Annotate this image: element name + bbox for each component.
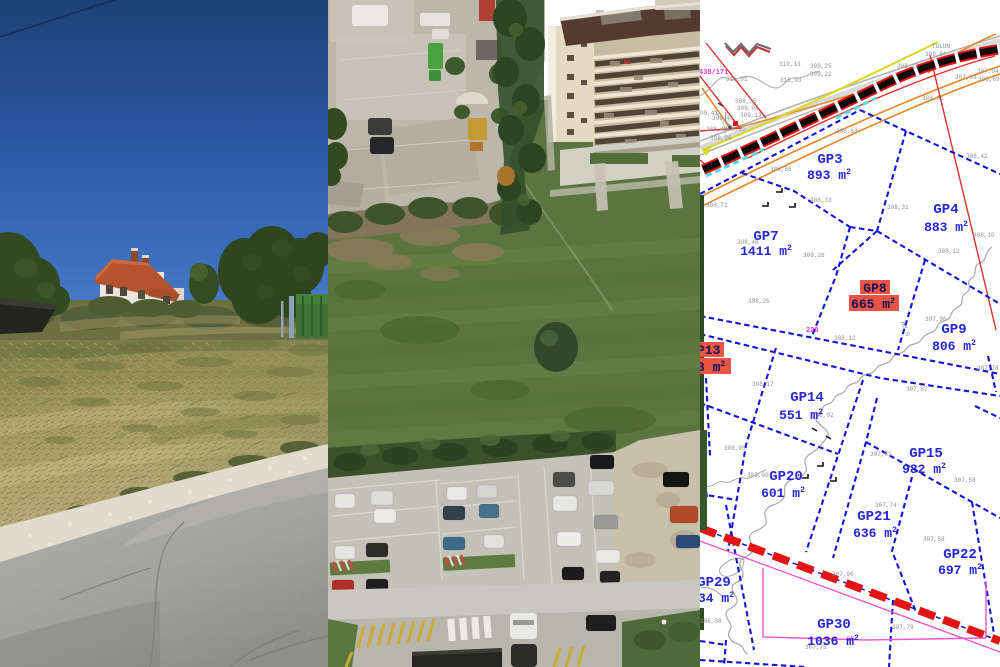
svg-text:308,61: 308,61 bbox=[922, 95, 944, 102]
svg-text:308,69: 308,69 bbox=[978, 76, 1000, 83]
svg-text:316,03: 316,03 bbox=[780, 77, 802, 84]
svg-text:GP29: GP29 bbox=[697, 575, 731, 591]
svg-text:307,58: 307,58 bbox=[923, 536, 945, 543]
svg-text:GP30: GP30 bbox=[817, 617, 851, 633]
svg-text:308,35: 308,35 bbox=[735, 98, 757, 105]
svg-text:1036 m2: 1036 m2 bbox=[807, 634, 859, 649]
svg-text:307,93: 307,93 bbox=[955, 74, 977, 81]
svg-text:GP20: GP20 bbox=[769, 469, 803, 485]
svg-text:308,72: 308,72 bbox=[706, 202, 728, 209]
svg-text:309,22: 309,22 bbox=[810, 71, 832, 78]
svg-text:308,17: 308,17 bbox=[752, 381, 774, 388]
svg-text:308,63: 308,63 bbox=[836, 128, 858, 135]
svg-text:GP21: GP21 bbox=[857, 509, 891, 525]
svg-text:308,25: 308,25 bbox=[748, 298, 770, 305]
svg-text:GP14: GP14 bbox=[790, 390, 824, 406]
svg-text:308,31: 308,31 bbox=[887, 204, 909, 211]
svg-text:665 m2: 665 m2 bbox=[851, 297, 895, 312]
svg-text:697 m2: 697 m2 bbox=[938, 563, 982, 578]
svg-text:307,87: 307,87 bbox=[906, 386, 928, 393]
svg-text:GP9: GP9 bbox=[941, 322, 966, 338]
svg-text:309,04: 309,04 bbox=[737, 105, 759, 112]
svg-text:GP7: GP7 bbox=[753, 229, 778, 245]
svg-text:893 m2: 893 m2 bbox=[807, 168, 851, 183]
svg-text:310,13: 310,13 bbox=[779, 61, 801, 68]
svg-text:308,26: 308,26 bbox=[710, 135, 732, 142]
svg-text:34 m2: 34 m2 bbox=[698, 591, 734, 606]
svg-text:308,21: 308,21 bbox=[724, 126, 746, 133]
svg-text:308,15: 308,15 bbox=[897, 63, 919, 70]
svg-text:551 m2: 551 m2 bbox=[779, 408, 823, 423]
svg-text:883 m2: 883 m2 bbox=[924, 220, 968, 235]
svg-text:309,25: 309,25 bbox=[810, 63, 832, 70]
svg-text:308,68: 308,68 bbox=[770, 166, 792, 173]
svg-text:982 m2: 982 m2 bbox=[902, 462, 946, 477]
svg-text:308,33: 308,33 bbox=[810, 197, 832, 204]
svg-text:636 m2: 636 m2 bbox=[853, 526, 897, 541]
svg-text:307,94: 307,94 bbox=[977, 68, 999, 75]
svg-text:307,79: 307,79 bbox=[892, 624, 914, 631]
svg-text:316,01: 316,01 bbox=[726, 76, 748, 83]
svg-text:308,12: 308,12 bbox=[834, 335, 856, 342]
svg-text:307,90: 307,90 bbox=[832, 571, 854, 578]
svg-text:307,78: 307,78 bbox=[977, 365, 999, 372]
svg-text:309,61: 309,61 bbox=[925, 51, 947, 58]
svg-text:309,13: 309,13 bbox=[740, 112, 762, 119]
svg-text:438/171: 438/171 bbox=[699, 69, 728, 77]
svg-text:GP3: GP3 bbox=[817, 152, 842, 168]
svg-text:308,10: 308,10 bbox=[973, 232, 995, 239]
svg-text:308,00: 308,00 bbox=[747, 472, 769, 479]
svg-text:P13: P13 bbox=[697, 343, 721, 358]
svg-text:228: 228 bbox=[806, 327, 819, 335]
svg-text:601 m2: 601 m2 bbox=[761, 486, 805, 501]
svg-text:GP4: GP4 bbox=[933, 202, 958, 218]
svg-text:308,12: 308,12 bbox=[938, 248, 960, 255]
svg-text:1411 m2: 1411 m2 bbox=[740, 244, 792, 259]
svg-text:307,58: 307,58 bbox=[954, 477, 976, 484]
svg-text:307,74: 307,74 bbox=[875, 502, 897, 509]
svg-text:308,42: 308,42 bbox=[966, 153, 988, 160]
svg-text:308,26: 308,26 bbox=[803, 252, 825, 259]
svg-text:308,46: 308,46 bbox=[712, 115, 734, 122]
svg-text:306,08: 306,08 bbox=[700, 618, 722, 625]
svg-text:GP8: GP8 bbox=[863, 281, 887, 296]
svg-text:TULUN: TULUN bbox=[932, 43, 950, 50]
svg-text:806 m2: 806 m2 bbox=[932, 339, 976, 354]
svg-text:307,81: 307,81 bbox=[870, 451, 892, 458]
svg-text:GP22: GP22 bbox=[943, 547, 977, 563]
svg-text:GP15: GP15 bbox=[909, 446, 943, 462]
svg-text:308,05: 308,05 bbox=[724, 445, 746, 452]
